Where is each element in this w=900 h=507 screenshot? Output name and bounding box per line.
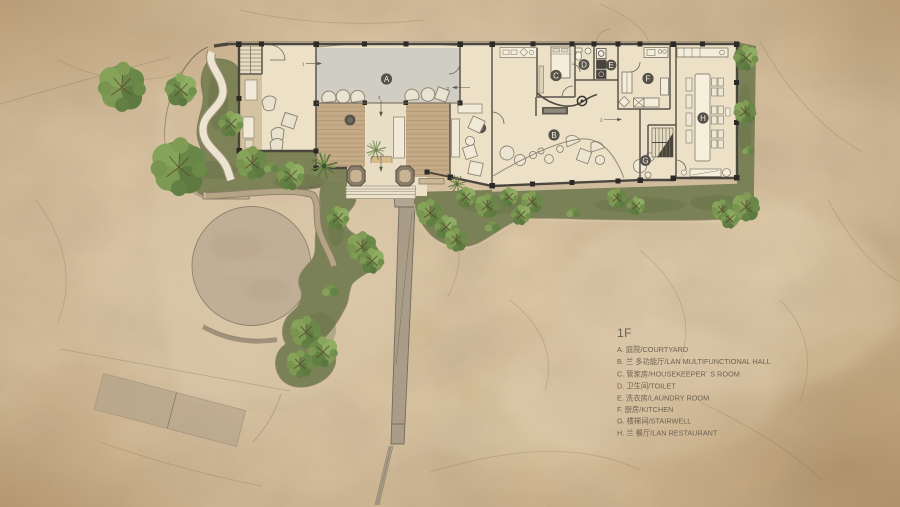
svg-text:1F: 1F <box>617 326 632 340</box>
svg-text:C. 管家房/HOUSEKEEPER` S ROOM: C. 管家房/HOUSEKEEPER` S ROOM <box>617 369 740 378</box>
svg-text:F: F <box>646 74 651 83</box>
svg-text:E: E <box>608 61 613 70</box>
svg-text:D. 卫生间/TOILET: D. 卫生间/TOILET <box>617 382 676 391</box>
svg-text:D: D <box>581 60 587 69</box>
svg-text:B: B <box>551 131 556 140</box>
svg-text:A: A <box>384 75 390 84</box>
svg-text:F. 厨房/KITCHEN: F. 厨房/KITCHEN <box>617 405 673 414</box>
svg-text:H. 兰 餐厅/LAN RESTAURANT: H. 兰 餐厅/LAN RESTAURANT <box>617 428 718 437</box>
svg-text:G: G <box>642 156 648 165</box>
svg-text:G. 楼梯间/STAIRWELL: G. 楼梯间/STAIRWELL <box>617 417 691 426</box>
svg-text:A. 庭院/COURTYARD: A. 庭院/COURTYARD <box>617 345 688 354</box>
svg-text:H: H <box>700 114 706 123</box>
svg-text:E. 洗衣房/LAUNDRY ROOM: E. 洗衣房/LAUNDRY ROOM <box>617 393 709 402</box>
svg-text:C: C <box>553 71 559 80</box>
svg-text:B. 兰 多功能厅/LAN MULTIFUNCTIONAL: B. 兰 多功能厅/LAN MULTIFUNCTIONAL HALL <box>617 357 771 366</box>
